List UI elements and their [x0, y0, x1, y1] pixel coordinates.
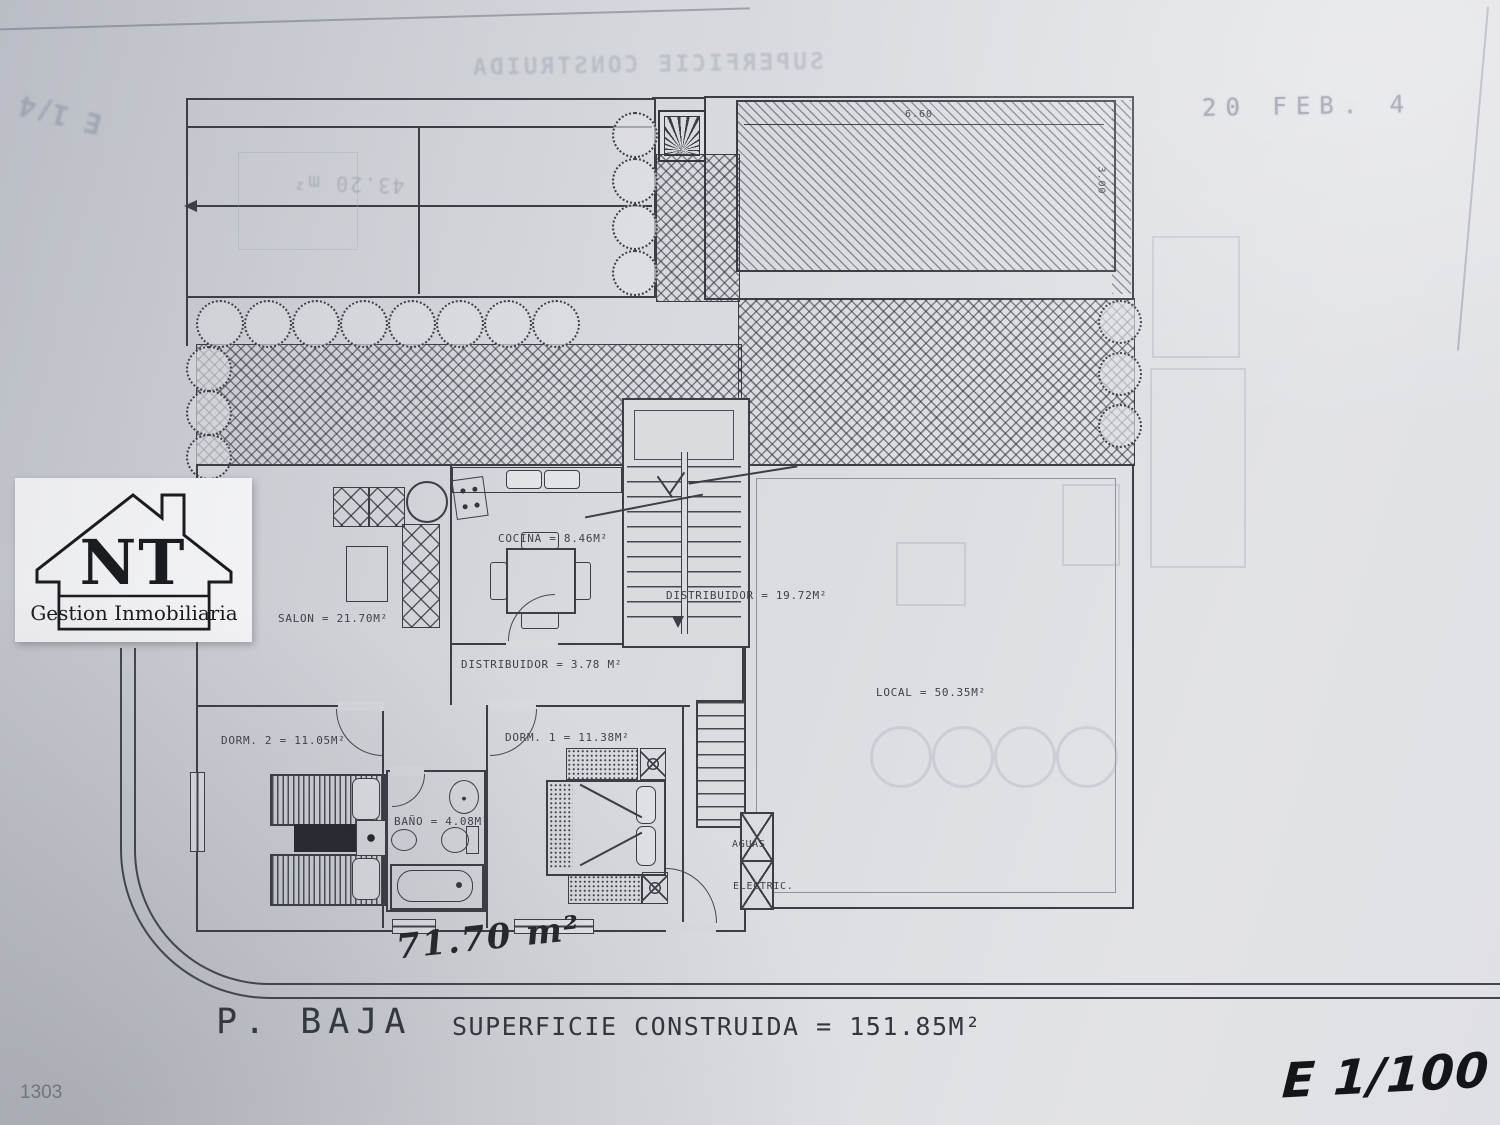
bathtub-drain	[456, 882, 462, 888]
nightstand-lamp	[356, 820, 386, 856]
staircase-rail	[681, 452, 688, 634]
salon-label: SALON = 21.70M²	[278, 612, 388, 625]
showthrough-shape	[1056, 726, 1118, 788]
showthrough-shape	[896, 542, 966, 606]
sheet-number: 1303	[20, 1082, 62, 1104]
logo-initials: NT	[80, 526, 187, 599]
sofa-row	[402, 524, 440, 628]
kitchen-bottom-wall	[450, 643, 506, 645]
showthrough-shape	[1152, 236, 1240, 358]
tree-icon	[292, 300, 340, 348]
nightstand-knob	[642, 872, 668, 904]
kitchen-bottom-wall	[558, 643, 622, 645]
scanned-floor-plan-photo: SUPERFICIE CONSTRUIDA E 1/4 20 FEB. 4 43…	[0, 0, 1500, 1125]
sofa-module	[333, 487, 369, 527]
tree-icon	[196, 300, 244, 348]
tree-icon	[1098, 300, 1142, 344]
bedside-block	[294, 824, 356, 852]
showthrough-shape	[994, 726, 1056, 788]
cocina-label: COCINA = 8.46M²	[498, 532, 608, 545]
window	[190, 772, 205, 852]
handwritten-scale: E 1/100	[1281, 1042, 1491, 1109]
showthrough-shape	[870, 726, 932, 788]
door-opening	[666, 922, 716, 932]
showthrough-header-text: SUPERFICIE CONSTRUIDA	[470, 49, 824, 81]
washbasin	[449, 780, 479, 814]
pool-depth-dimension: 3.00	[1096, 166, 1107, 194]
secondary-staircase	[696, 700, 746, 828]
toilet-tank	[466, 826, 479, 854]
dining-table	[506, 548, 576, 614]
nightstand-knob	[640, 748, 666, 780]
paper-crease	[1457, 7, 1489, 351]
tree-icon	[1098, 404, 1142, 448]
pillow	[636, 786, 656, 824]
garage-bay-divider	[418, 128, 420, 294]
electric-label: ELECTRIC.	[733, 881, 794, 892]
pillow	[352, 778, 380, 820]
tree-icon	[1098, 352, 1142, 396]
showthrough-shape	[1150, 368, 1246, 568]
pool-width-dimension: 6.60	[905, 109, 933, 120]
date-stamp: 20 FEB. 4	[1202, 90, 1414, 122]
tree-icon	[612, 158, 658, 204]
logo-house-icon: NT Gestion Inmobiliaria	[15, 478, 252, 642]
round-table	[406, 481, 448, 523]
built-area-title: SUPERFICIE CONSTRUIDA = 151.85M²	[452, 1012, 982, 1041]
tree-icon	[186, 390, 232, 436]
local-label: LOCAL = 50.35M²	[876, 686, 986, 699]
tree-icon	[612, 250, 658, 296]
toilet-bowl	[441, 827, 469, 853]
dorm1-label: DORM. 1 = 11.38M²	[505, 731, 629, 744]
agency-logo: NT Gestion Inmobiliaria	[15, 478, 252, 642]
garage-inner-line	[188, 126, 652, 128]
distribuidor-hall-label: DISTRIBUIDOR = 3.78 M²	[461, 658, 622, 671]
tree-icon	[612, 112, 658, 158]
tree-icon	[612, 204, 658, 250]
swimming-pool	[736, 100, 1116, 272]
rug	[568, 874, 642, 904]
stair-direction-arrow-icon	[672, 616, 684, 628]
paper-top-edge	[0, 7, 750, 30]
stove	[451, 476, 488, 520]
aguas-label: AGUAS	[732, 839, 766, 850]
showthrough-corner-scale: E 1/4	[18, 88, 102, 142]
tree-icon	[484, 300, 532, 348]
bed-blanket-texture	[549, 783, 573, 869]
terrace-paving	[738, 298, 1135, 466]
tree-icon	[186, 346, 232, 392]
pool-dimension-line	[744, 124, 1104, 125]
logo-subtitle: Gestion Inmobiliaria	[30, 601, 237, 625]
chair	[490, 562, 507, 600]
plot-boundary-line	[652, 97, 706, 99]
bedroom-top-wall	[196, 705, 338, 707]
plot-boundary-line	[186, 296, 188, 346]
showthrough-shape	[238, 152, 358, 250]
pillow	[352, 858, 380, 900]
water-meter-closet	[740, 812, 774, 862]
chair	[521, 612, 559, 629]
tree-icon	[340, 300, 388, 348]
dorm2-label: DORM. 2 = 11.05M²	[221, 734, 345, 747]
sink-basin	[544, 470, 580, 489]
driveway-arrow-icon	[184, 200, 197, 212]
tree-icon	[244, 300, 292, 348]
sofa-module	[369, 487, 405, 527]
tree-icon	[532, 300, 580, 348]
sink-basin	[506, 470, 542, 489]
coffee-table	[346, 546, 388, 602]
bidet	[391, 829, 417, 851]
tree-icon	[436, 300, 484, 348]
showthrough-garage-area: 43.20 m²	[292, 170, 405, 198]
drain-grille-inner	[664, 116, 700, 156]
terrace-paving	[656, 154, 740, 302]
showthrough-shape	[1062, 484, 1120, 566]
tree-icon	[388, 300, 436, 348]
distribuidor-main-label: DISTRIBUIDOR = 19.72M²	[666, 589, 827, 602]
rug	[566, 748, 638, 780]
chair	[574, 562, 591, 600]
bedroom-top-wall	[534, 705, 690, 707]
bano-label: BAÑO = 4.08M²	[394, 815, 489, 828]
showthrough-shape	[932, 726, 994, 788]
floor-title: P. BAJA	[216, 1002, 413, 1042]
pool-deck-hatch	[1112, 100, 1131, 294]
hall-divider-wall	[450, 643, 452, 705]
